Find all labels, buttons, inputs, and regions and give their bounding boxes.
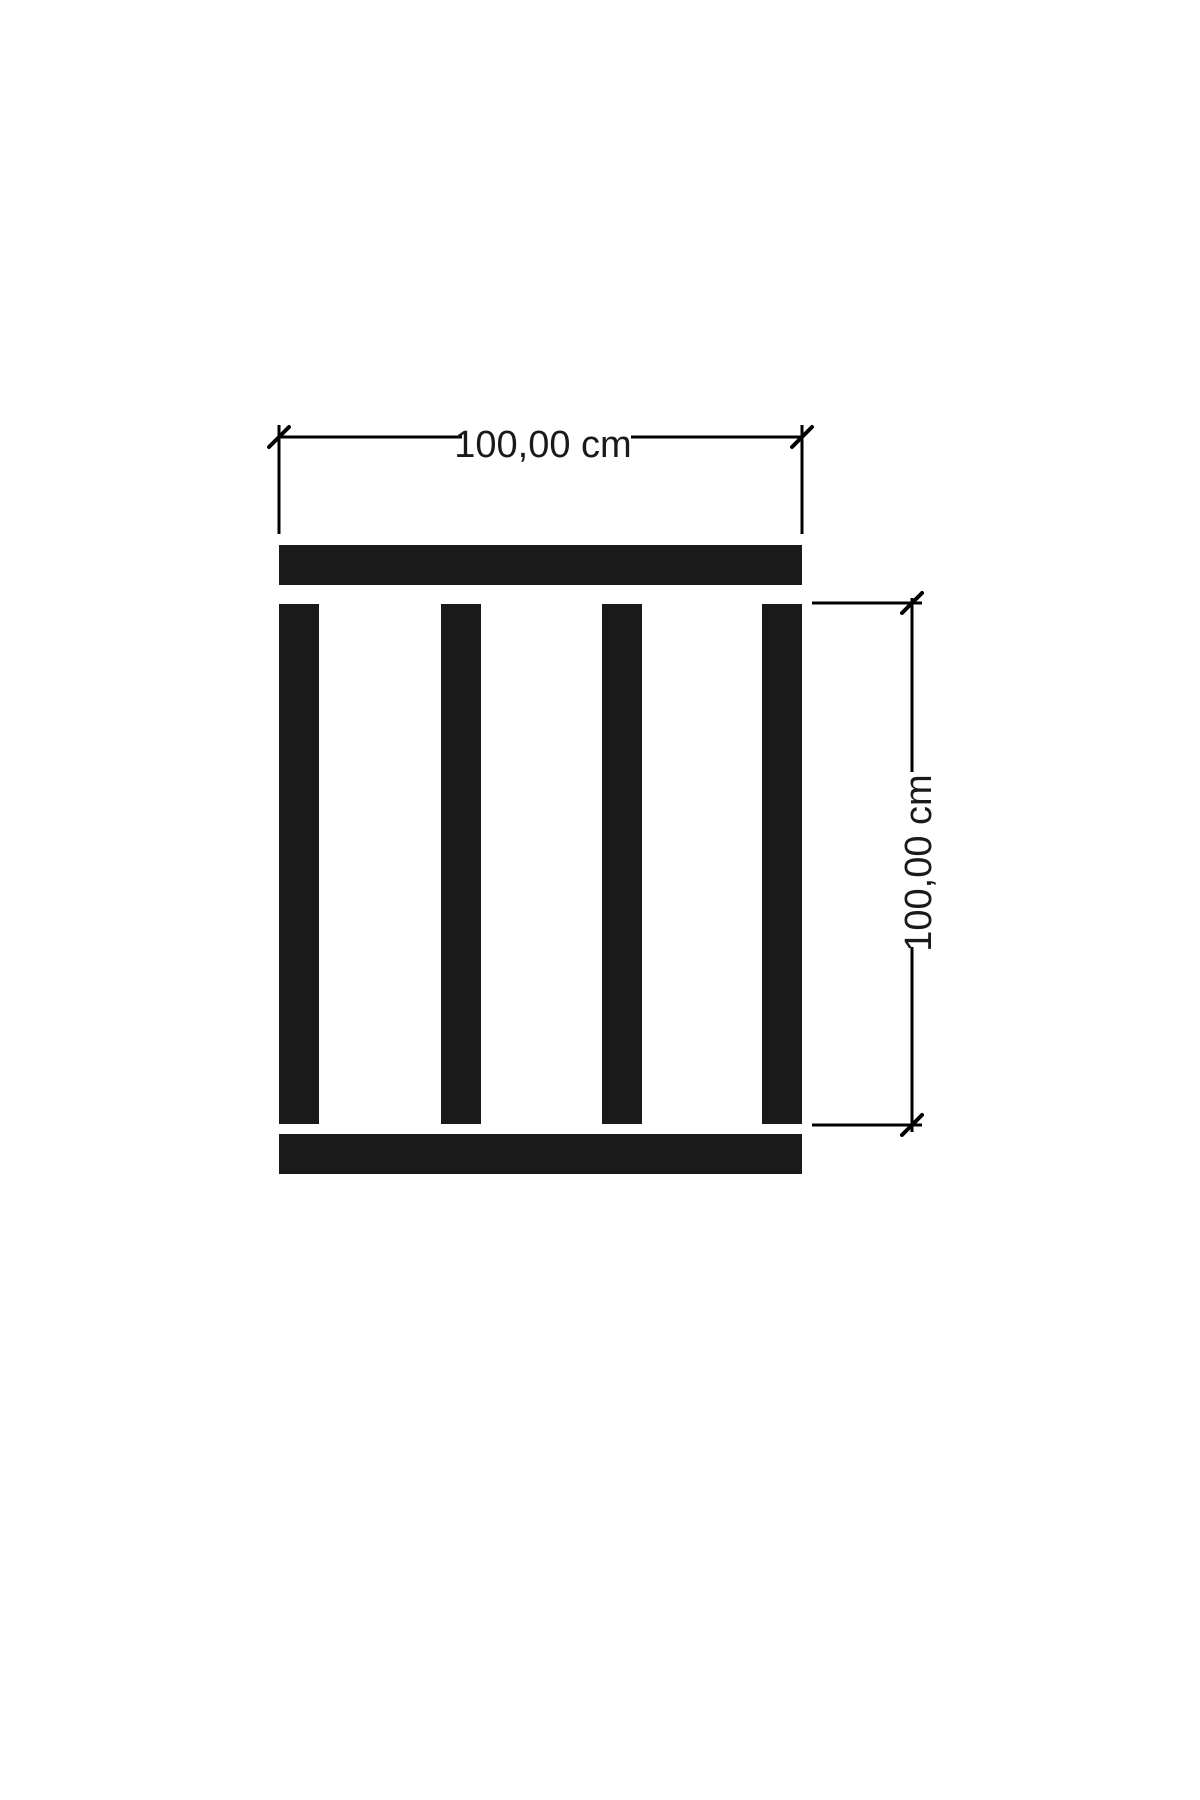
slatted-panel-dimension-drawing: 100,00 cm100,00 cm: [0, 0, 1200, 1800]
technical-drawing-page: 100,00 cm100,00 cm: [0, 0, 1200, 1800]
width-dimension-label: 100,00 cm: [454, 424, 631, 466]
slat-4: [762, 604, 802, 1124]
slat-1: [279, 604, 319, 1124]
slat-3: [602, 604, 642, 1124]
drawing-background: [0, 0, 1200, 1800]
slat-2: [441, 604, 481, 1124]
bottom-rail: [279, 1134, 802, 1174]
top-rail: [279, 545, 802, 585]
height-dimension-label: 100,00 cm: [898, 774, 940, 951]
